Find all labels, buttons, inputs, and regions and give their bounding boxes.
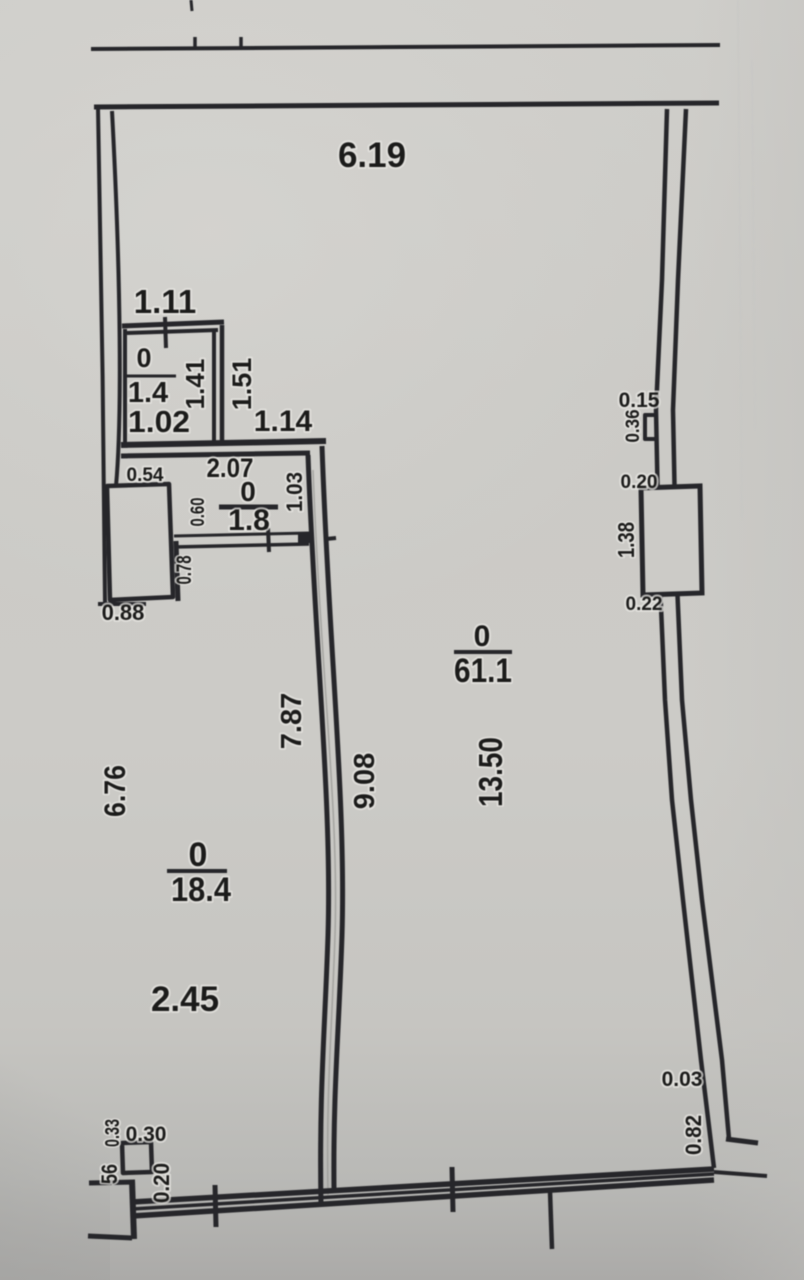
svg-text:0.54: 0.54 bbox=[127, 465, 164, 486]
svg-text:9.08: 9.08 bbox=[349, 753, 381, 809]
svg-text:0.33: 0.33 bbox=[102, 1119, 124, 1147]
svg-text:7.87: 7.87 bbox=[276, 693, 308, 749]
svg-text:0: 0 bbox=[136, 343, 151, 373]
svg-text:0.20: 0.20 bbox=[621, 472, 658, 493]
svg-text:61.1: 61.1 bbox=[454, 652, 512, 690]
svg-text:0.78: 0.78 bbox=[173, 555, 196, 584]
svg-text:1.51: 1.51 bbox=[227, 358, 257, 411]
svg-text:0.15: 0.15 bbox=[619, 389, 660, 412]
svg-text:0.82: 0.82 bbox=[681, 1115, 706, 1155]
svg-text:13.50: 13.50 bbox=[472, 737, 509, 807]
svg-text:1.8: 1.8 bbox=[228, 504, 270, 537]
svg-text:18.4: 18.4 bbox=[171, 871, 231, 909]
svg-text:6.19: 6.19 bbox=[338, 136, 406, 175]
svg-text:1.11: 1.11 bbox=[134, 283, 196, 320]
svg-text:0: 0 bbox=[240, 476, 256, 507]
svg-text:0.88: 0.88 bbox=[102, 600, 145, 625]
svg-text:1.38: 1.38 bbox=[613, 522, 639, 558]
svg-text:0.03: 0.03 bbox=[662, 1068, 703, 1091]
svg-text:0: 0 bbox=[474, 620, 491, 653]
svg-text:1.03: 1.03 bbox=[282, 472, 307, 512]
svg-text:0.20: 0.20 bbox=[149, 1163, 174, 1203]
svg-text:0.60: 0.60 bbox=[188, 498, 209, 527]
svg-text:1.41: 1.41 bbox=[180, 359, 210, 410]
svg-text:0.22: 0.22 bbox=[626, 594, 663, 615]
svg-text:2.45: 2.45 bbox=[151, 980, 219, 1019]
svg-text:0: 0 bbox=[189, 836, 208, 874]
svg-text:0.36: 0.36 bbox=[623, 410, 644, 443]
svg-text:1.14: 1.14 bbox=[254, 405, 313, 438]
svg-text:0.30: 0.30 bbox=[126, 1123, 167, 1146]
svg-text:56: 56 bbox=[97, 1164, 122, 1184]
svg-text:6.76: 6.76 bbox=[99, 765, 132, 817]
